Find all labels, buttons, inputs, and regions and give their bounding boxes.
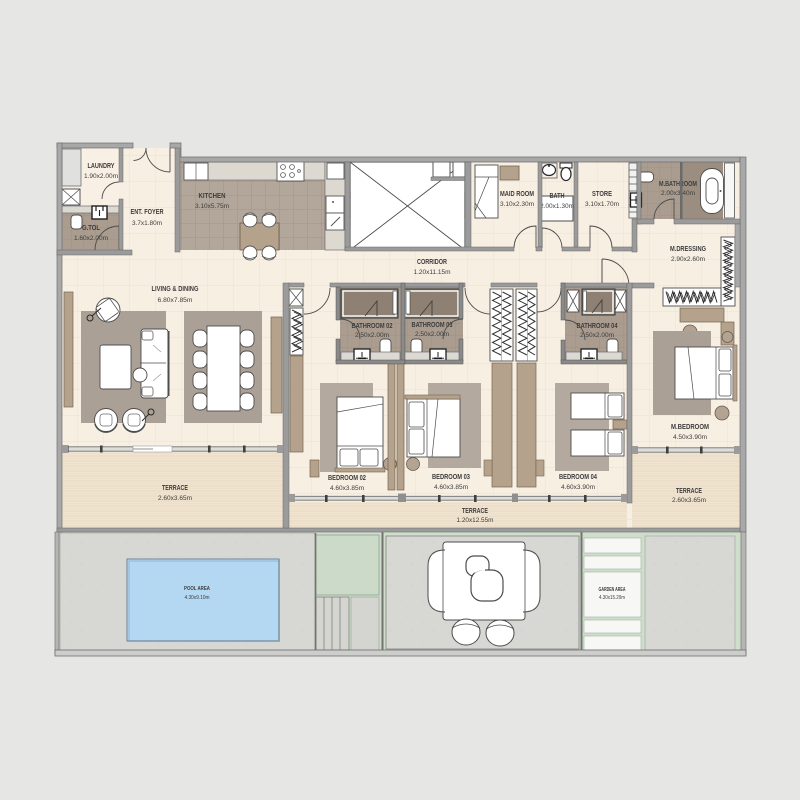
svg-text:STORE: STORE (592, 191, 612, 198)
svg-text:TERRACE: TERRACE (462, 508, 488, 515)
svg-text:4.60x3.85m: 4.60x3.85m (330, 485, 364, 492)
svg-text:3.10x5.75m: 3.10x5.75m (195, 203, 229, 210)
svg-text:TERRACE: TERRACE (162, 485, 188, 492)
svg-text:BATH: BATH (550, 193, 565, 200)
svg-text:KITCHEN: KITCHEN (199, 193, 226, 200)
svg-text:M.BEDROOM: M.BEDROOM (671, 424, 709, 431)
svg-text:4.60x3.85m: 4.60x3.85m (434, 484, 468, 491)
svg-text:2.90x2.60m: 2.90x2.60m (671, 256, 705, 263)
svg-text:2.60x3.65m: 2.60x3.65m (672, 497, 706, 504)
svg-text:GARDEN AREA: GARDEN AREA (599, 587, 626, 593)
svg-text:2.00x1.30m: 2.00x1.30m (540, 203, 574, 210)
svg-text:BEDROOM 03: BEDROOM 03 (432, 474, 470, 481)
svg-text:6.80x7.85m: 6.80x7.85m (158, 297, 193, 304)
svg-text:3.10x2.30m: 3.10x2.30m (500, 201, 534, 208)
svg-text:4.60x3.90m: 4.60x3.90m (561, 484, 595, 491)
svg-text:BEDROOM 04: BEDROOM 04 (559, 474, 597, 481)
svg-text:4.30x9.10m: 4.30x9.10m (185, 595, 210, 601)
svg-text:1.90x2.00m: 1.90x2.00m (84, 173, 118, 180)
svg-text:BATHROOM 04: BATHROOM 04 (577, 323, 618, 330)
svg-text:TERRACE: TERRACE (676, 488, 702, 495)
svg-text:1.20x12.55m: 1.20x12.55m (457, 517, 494, 524)
svg-text:CORRIDOR: CORRIDOR (417, 259, 447, 266)
svg-text:M.DRESSING: M.DRESSING (670, 246, 706, 253)
svg-text:MAID ROOM: MAID ROOM (500, 191, 534, 198)
svg-text:2.00x3.40m: 2.00x3.40m (661, 190, 695, 197)
svg-text:4.30x15.20m: 4.30x15.20m (599, 595, 625, 601)
svg-text:3.7x1.80m: 3.7x1.80m (132, 220, 162, 227)
svg-text:1.60x2.00m: 1.60x2.00m (74, 235, 108, 242)
svg-text:LAUNDRY: LAUNDRY (88, 163, 115, 170)
svg-text:LIVING & DINING: LIVING & DINING (152, 286, 199, 293)
svg-text:POOL AREA: POOL AREA (184, 586, 210, 592)
svg-text:ENT. FOYER: ENT. FOYER (131, 209, 164, 216)
svg-text:BEDROOM 02: BEDROOM 02 (328, 475, 366, 482)
svg-text:M.BATHROOM: M.BATHROOM (659, 181, 697, 188)
svg-text:2.60x3.65m: 2.60x3.65m (158, 495, 192, 502)
svg-text:3.10x1.70m: 3.10x1.70m (585, 201, 619, 208)
svg-text:1.20x11.15m: 1.20x11.15m (414, 269, 451, 276)
svg-text:4.50x3.90m: 4.50x3.90m (673, 434, 707, 441)
svg-text:G.TOL: G.TOL (82, 225, 101, 232)
